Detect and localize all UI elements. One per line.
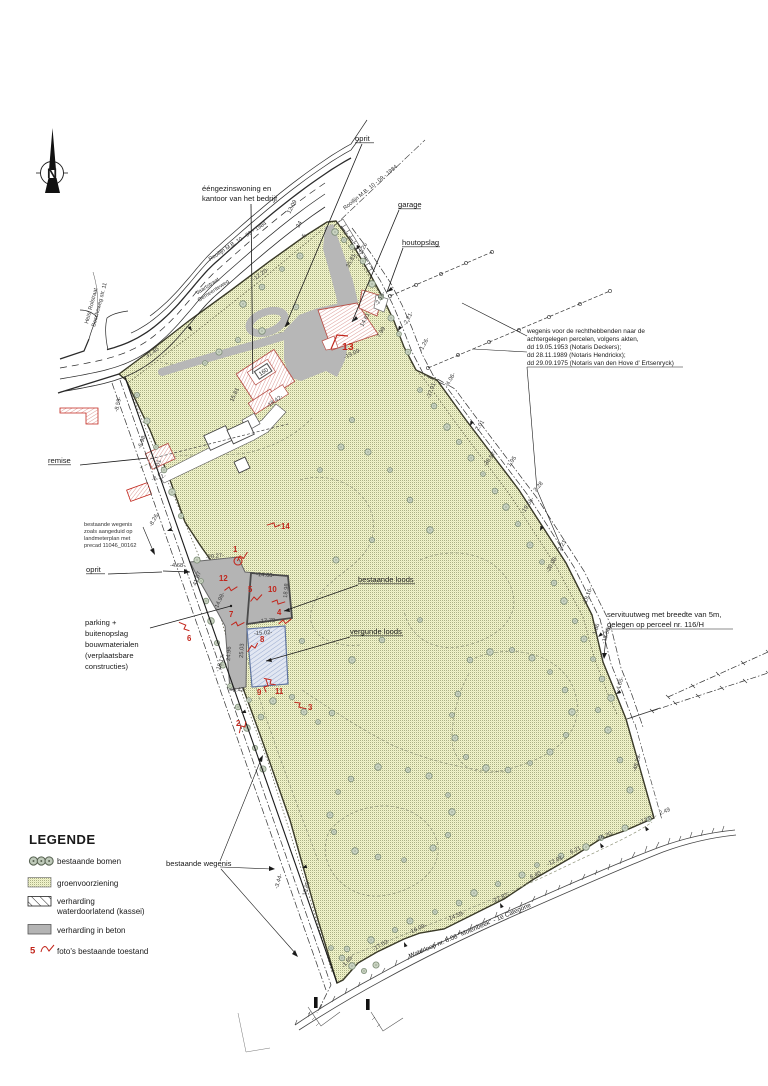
svg-text:dd 19.05.1953 (Notaris Deckers: dd 19.05.1953 (Notaris Deckers); (527, 344, 621, 351)
svg-text:N: N (47, 165, 57, 181)
svg-text:-17.79-: -17.79- (259, 618, 278, 625)
svg-text:foto's bestaande toestand: foto's bestaande toestand (57, 947, 148, 956)
svg-text:precad 11046_00162: precad 11046_00162 (84, 543, 136, 549)
svg-text:1: 1 (233, 545, 238, 554)
svg-text:groenvoorziening: groenvoorziening (57, 879, 118, 888)
svg-text:zoals aangeduid op: zoals aangeduid op (84, 529, 133, 535)
svg-text:garage: garage (398, 200, 422, 209)
svg-text:verharding: verharding (57, 897, 95, 906)
svg-text:oprit: oprit (86, 565, 102, 574)
svg-text:14: 14 (281, 522, 290, 531)
svg-text:24.96: 24.96 (226, 646, 233, 661)
svg-text:waterdoorlatend (kassei): waterdoorlatend (kassei) (56, 907, 145, 916)
svg-text:buitenopslag: buitenopslag (85, 629, 128, 638)
svg-text:dd 29.09.1975 (Notaris van den: dd 29.09.1975 (Notaris van den Hove d' E… (527, 360, 674, 367)
svg-text:LEGENDE: LEGENDE (29, 832, 96, 847)
svg-text:5: 5 (30, 946, 36, 957)
svg-text:bouwmaterialen: bouwmaterialen (85, 640, 139, 649)
svg-text:3: 3 (308, 703, 313, 712)
svg-text:25.03: 25.03 (239, 643, 246, 658)
svg-text:dd 28.11.1989 (Notaris Hendric: dd 28.11.1989 (Notaris Hendrickx); (527, 352, 626, 359)
svg-text:7: 7 (229, 610, 233, 619)
svg-text:8: 8 (260, 635, 265, 644)
svg-text:-14.60-: -14.60- (256, 572, 275, 579)
svg-text:oprit: oprit (355, 134, 371, 143)
svg-text:13: 13 (342, 341, 354, 353)
svg-text:remise: remise (48, 456, 71, 465)
svg-text:bestaande bomen: bestaande bomen (57, 857, 121, 866)
svg-text:6: 6 (187, 634, 192, 643)
svg-text:18.98: 18.98 (283, 583, 290, 598)
svg-text:constructies): constructies) (85, 662, 129, 671)
svg-text:-8.43-: -8.43- (231, 687, 247, 694)
svg-text:achtergelegen percelen, volgen: achtergelegen percelen, volgens akten, (527, 336, 639, 343)
svg-text:bestaande wegenis: bestaande wegenis (166, 859, 232, 868)
svg-text:bestaande wegenis: bestaande wegenis (84, 522, 132, 528)
svg-text:12: 12 (219, 574, 228, 583)
svg-text:gelegen op perceel nr. 116/H: gelegen op perceel nr. 116/H (607, 620, 704, 629)
svg-text:ééngezinswoning en: ééngezinswoning en (202, 184, 271, 193)
svg-text:servituutweg met breedte van 5: servituutweg met breedte van 5m, (607, 610, 721, 619)
svg-text:-4.68-: -4.68- (170, 563, 185, 569)
svg-text:vergunde loods: vergunde loods (350, 627, 402, 636)
svg-text:landmeterplan met: landmeterplan met (84, 536, 131, 542)
svg-text:10: 10 (268, 585, 277, 594)
svg-text:bestaande loods: bestaande loods (358, 575, 414, 584)
svg-text:houtopslag: houtopslag (402, 238, 439, 247)
svg-text:kantoor van het bedrijf: kantoor van het bedrijf (202, 194, 278, 203)
svg-text:11: 11 (275, 687, 284, 696)
svg-text:9: 9 (257, 688, 262, 697)
svg-text:5: 5 (248, 585, 253, 594)
svg-text:(verplaatsbare: (verplaatsbare (85, 651, 134, 660)
svg-text:wegenis voor de rechthebbenden: wegenis voor de rechthebbenden naar de (526, 328, 645, 335)
svg-text:verharding in beton: verharding in beton (57, 926, 126, 935)
svg-text:parking +: parking + (85, 618, 117, 627)
svg-text:4: 4 (277, 608, 282, 617)
